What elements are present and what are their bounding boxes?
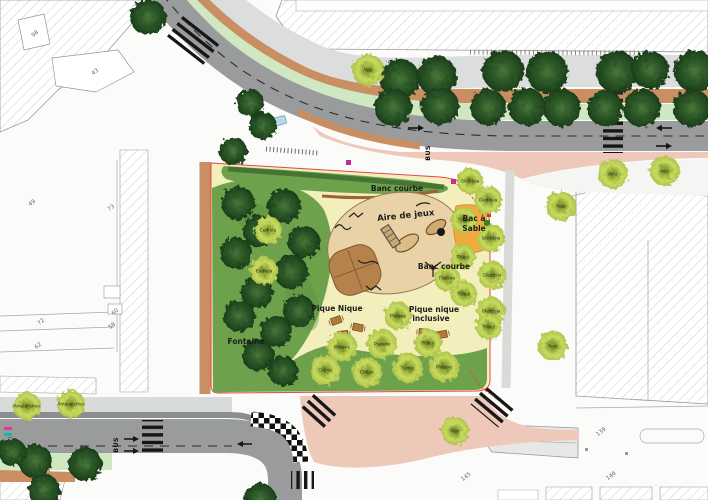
tree-label: Cedrela	[260, 228, 277, 234]
tree-dark	[130, 0, 166, 35]
label-fontaine: Fontaine	[228, 337, 265, 346]
tree-label: Platane	[374, 342, 390, 348]
magenta-marker	[451, 179, 456, 184]
tree-dark	[68, 447, 102, 481]
tree-dark	[274, 255, 308, 289]
tree-label: Platane	[390, 314, 406, 320]
tree-dark	[623, 89, 661, 127]
label-bus-bottom: BUS	[112, 437, 120, 453]
marker-magenta-small	[4, 427, 12, 430]
site-plan-svg: AcerAcerAcerAcerAcerAcerAmelanchierAmela…	[0, 0, 708, 500]
tree-dark	[631, 51, 669, 89]
tree-label: Acer	[450, 429, 460, 435]
label-pique-nique-inclusive-2: inclusive	[412, 314, 449, 323]
tree-dark	[526, 51, 568, 93]
tree-label: Gleditsia	[461, 179, 480, 185]
tree-label: Gleditsia	[482, 236, 501, 242]
tree-label: Gleditsia	[483, 273, 502, 279]
tree-dark	[288, 226, 320, 258]
label-pique-nique: Pique Nique	[311, 304, 362, 313]
tree-label: Acer	[608, 172, 618, 178]
tree-dark	[543, 89, 581, 127]
tree-label: Tilleul	[456, 255, 470, 261]
tree-label: Acer	[548, 344, 558, 350]
site-plan: AcerAcerAcerAcerAcerAcerAmelanchierAmela…	[0, 0, 708, 500]
tree-label: Chêne	[360, 369, 374, 376]
tree-label: Tilleul	[457, 292, 471, 298]
label-bus-top: BUS	[424, 145, 432, 161]
tree-label: Cedrela	[256, 269, 273, 275]
marker-teal-small	[4, 433, 12, 436]
tree-dark	[421, 87, 459, 125]
path-gray-right	[506, 170, 510, 388]
tree-dark	[374, 88, 412, 126]
tree-label: Tilleul	[421, 341, 435, 347]
tree-dark	[508, 88, 546, 126]
tree-label: Ginko	[402, 366, 415, 372]
building-block-right	[576, 186, 708, 404]
tree-dark	[221, 186, 255, 220]
tree-label: Chêne	[318, 367, 332, 374]
tree-label: Gleditsia	[482, 309, 501, 315]
tree-dark	[223, 300, 255, 332]
tree-label: Platane	[334, 345, 350, 351]
tree-dark	[268, 356, 298, 386]
label-bac-a-sable-1: Bac à	[463, 214, 486, 223]
crosswalk-bottom-road	[142, 420, 163, 454]
tree-label: Amelanchier	[57, 402, 84, 408]
tree-dark	[220, 237, 252, 269]
crosswalk-vertical-road	[291, 471, 314, 489]
label-banc-courbe-top: Banc courbe	[371, 184, 423, 193]
magenta-marker	[346, 160, 351, 165]
tree-label: Acer	[660, 169, 670, 175]
tree-label: Platane	[439, 276, 455, 282]
tree-dark	[587, 90, 623, 126]
tree-dark	[249, 112, 277, 140]
tree-label: Amelanchier	[13, 404, 40, 410]
tree-dark	[219, 137, 247, 165]
tree-label: Gleditsia	[479, 198, 498, 204]
building-band-left	[120, 150, 148, 392]
label-pique-nique-inclusive-1: Pique nique	[409, 305, 459, 314]
tree-dark	[470, 89, 506, 125]
label-banc-courbe-right: Banc courbe	[418, 262, 470, 271]
tree-label: Acer	[363, 68, 373, 74]
tree-label: Acer	[556, 204, 566, 210]
tree-dark	[482, 50, 524, 92]
building-facade-strip	[296, 0, 708, 11]
building-strip-left-bottom	[0, 376, 96, 394]
tree-label: Platane	[436, 365, 452, 371]
label-bac-a-sable-2: Sable	[462, 224, 486, 233]
tree-label: Tilleul	[482, 325, 496, 331]
